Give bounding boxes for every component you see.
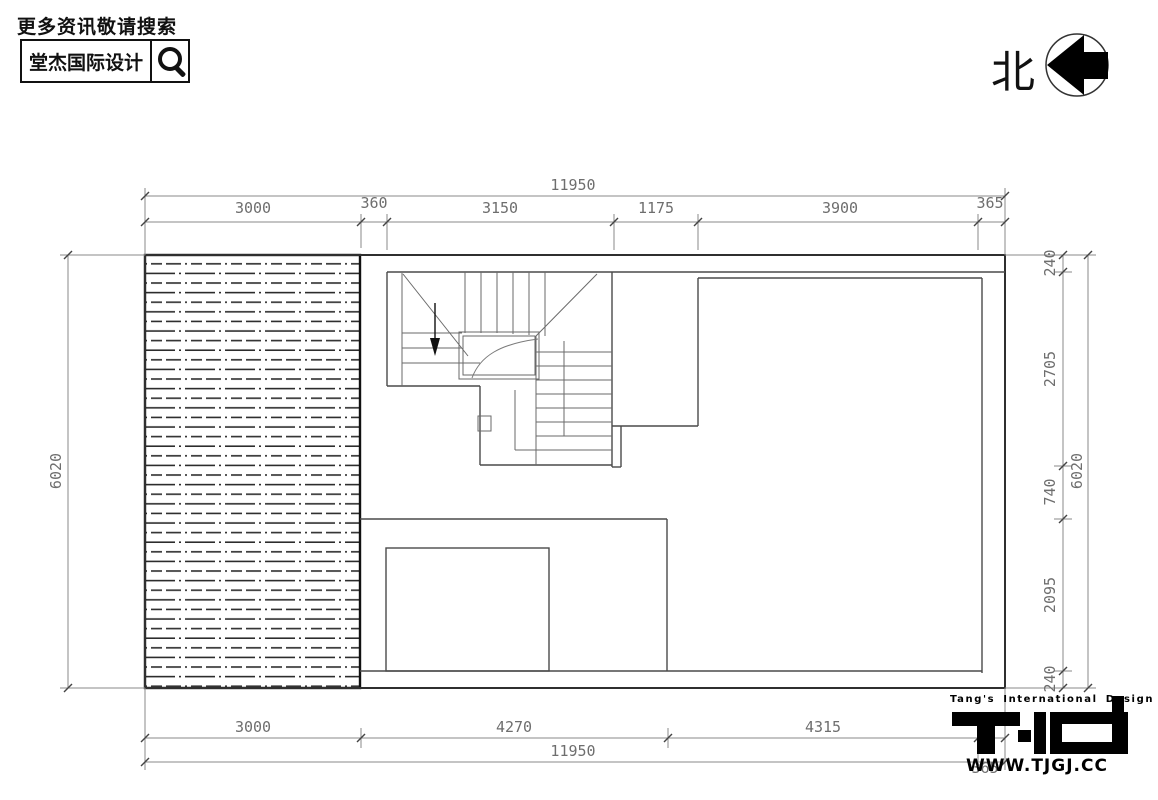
dim-top-seg-4: 1175 xyxy=(638,199,674,217)
dim-bottom-seg-3: 4315 xyxy=(805,718,841,736)
dim-right-seg-4: 2095 xyxy=(1041,577,1059,613)
inner-walls xyxy=(360,272,1005,673)
dim-top-seg-1: 3000 xyxy=(235,199,271,217)
dim-top-seg-3: 3150 xyxy=(482,199,518,217)
staircase xyxy=(402,272,612,465)
brand-logo-box: 堂杰国际设计 xyxy=(20,39,190,83)
dim-top-seg-2: 360 xyxy=(360,194,387,212)
brand-name-text: 堂杰国际设计 xyxy=(22,48,150,75)
hatched-area xyxy=(145,255,360,688)
dim-right-seg-5: 240 xyxy=(1041,665,1059,692)
tjd-website: WWW.TJGJ.CC xyxy=(966,756,1108,776)
dim-right-seg-2: 2705 xyxy=(1041,351,1059,387)
dim-right-seg-3: 740 xyxy=(1041,478,1059,505)
dim-right-total: 6020 xyxy=(1068,453,1086,489)
floor-plan-sheet: 更多资讯敬请搜索 堂杰国际设计 北 11950 3000 360 3150 11… xyxy=(0,0,1158,800)
floor-plan-drawing xyxy=(0,0,1158,800)
tjd-footer-logo: Tang's International Design WWW.TJGJ.CC xyxy=(946,690,1142,782)
search-notice-text: 更多资讯敬请搜索 xyxy=(17,12,177,39)
search-icon xyxy=(152,41,188,81)
dim-top-seg-6: 365 xyxy=(976,194,1003,212)
north-arrow-icon xyxy=(1046,34,1108,96)
dim-left-total: 6020 xyxy=(47,453,65,489)
dim-right-seg-1: 240 xyxy=(1041,249,1059,276)
dim-bottom-seg-2: 4270 xyxy=(496,718,532,736)
north-label: 北 xyxy=(991,36,1035,100)
dim-top-total: 11950 xyxy=(550,176,595,194)
dim-bottom-seg-1: 3000 xyxy=(235,718,271,736)
dim-top-seg-5: 3900 xyxy=(822,199,858,217)
dim-bottom-total: 11950 xyxy=(550,742,595,760)
